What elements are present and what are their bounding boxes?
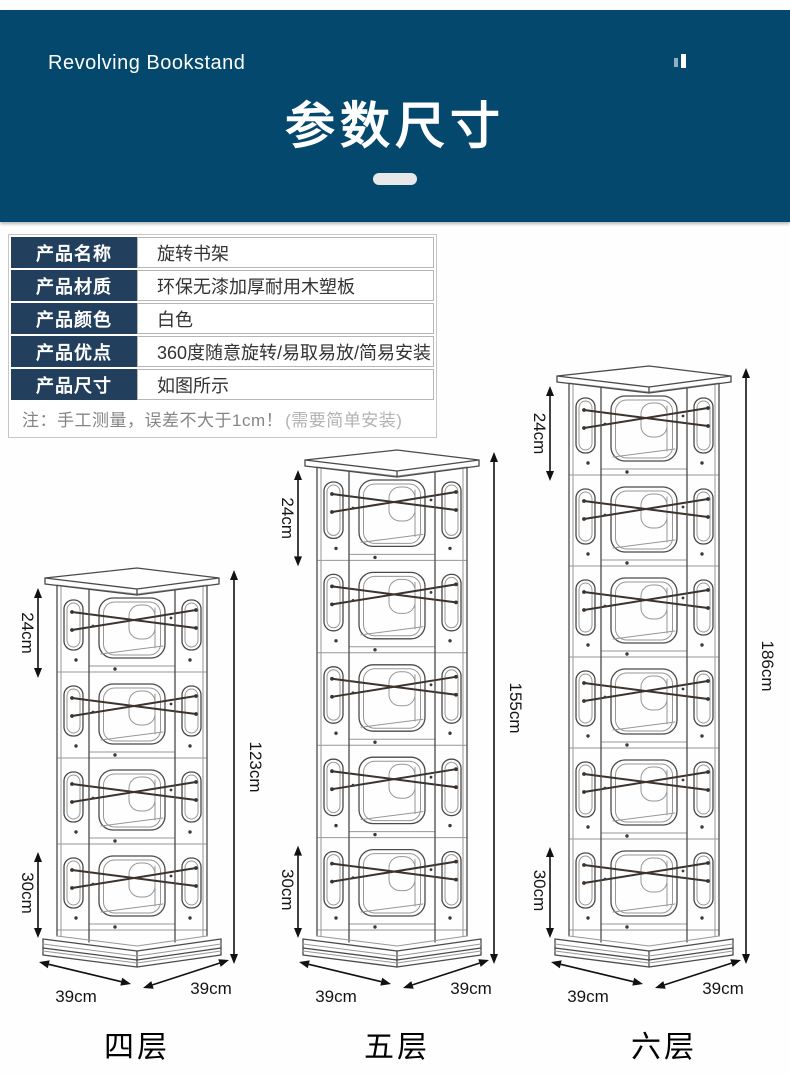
shelf-diagram-six-tier: 186cm24cm30cm39cm39cm — [524, 360, 780, 1014]
shelf-diagram-five-tier: 155cm24cm30cm39cm39cm — [272, 444, 522, 1014]
dim-label-front-width: 39cm — [315, 987, 357, 1006]
shelf-name-six-tier: 六层 — [536, 1022, 790, 1066]
dim-label-side-depth: 39cm — [450, 979, 492, 998]
shelf-drawing-five-tier: 155cm24cm30cm39cm39cm — [272, 444, 522, 1014]
dim-label-height: 123cm — [246, 741, 262, 792]
shelf-name-four-tier: 四层 — [12, 1022, 262, 1066]
page: Revolving Bookstand 参数尺寸 产品名称旋转书架产品材质环保无… — [0, 0, 790, 1074]
dim-label-bottom: 30cm — [278, 869, 297, 911]
dim-label-side-depth: 39cm — [190, 979, 232, 998]
shelf-drawing-six-tier: 186cm24cm30cm39cm39cm — [524, 360, 780, 1014]
dim-label-top: 24cm — [530, 413, 549, 455]
dim-label-top: 24cm — [18, 612, 37, 654]
dim-label-bottom: 30cm — [18, 872, 37, 914]
dimension-diagrams: 123cm24cm30cm39cm39cm四层155cm24cm30cm39cm… — [0, 0, 790, 1074]
dim-label-height: 186cm — [758, 640, 777, 691]
dim-label-top: 24cm — [278, 497, 297, 539]
shelf-drawing-four-tier: 123cm24cm30cm39cm39cm — [12, 562, 262, 1014]
dim-label-side-depth: 39cm — [702, 979, 744, 998]
dim-label-height: 155cm — [506, 682, 522, 733]
dim-label-bottom: 30cm — [530, 870, 549, 912]
dim-label-front-width: 39cm — [55, 987, 97, 1006]
dim-label-front-width: 39cm — [567, 987, 609, 1006]
shelf-diagram-four-tier: 123cm24cm30cm39cm39cm — [12, 562, 262, 1014]
shelf-name-five-tier: 五层 — [272, 1022, 522, 1066]
